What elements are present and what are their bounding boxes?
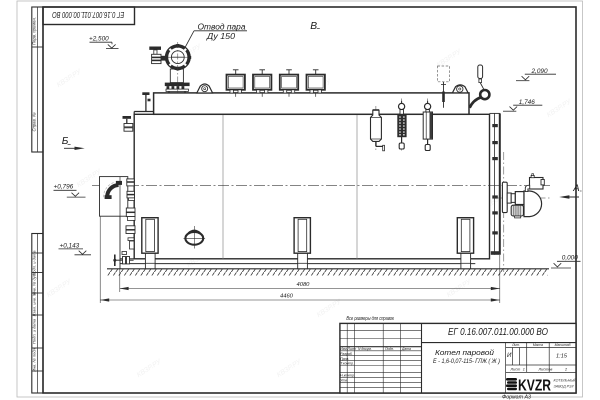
svg-text:Отвод пара: Отвод пара: [198, 22, 247, 31]
svg-text:КОТЕЛЬНЫЙ: КОТЕЛЬНЫЙ: [554, 379, 577, 383]
svg-text:2,090: 2,090: [531, 68, 548, 75]
svg-text:Все размеры для справок: Все размеры для справок: [346, 316, 394, 322]
svg-text:+2,500: +2,500: [89, 36, 109, 43]
svg-text:Взам. инв. №: Взам. инв. №: [32, 291, 37, 316]
svg-text:Т.контр.: Т.контр.: [340, 362, 354, 366]
svg-text:Инв. № подл.: Инв. № подл.: [32, 347, 37, 372]
svg-text:Масса: Масса: [533, 343, 543, 347]
svg-text:4080: 4080: [297, 282, 311, 288]
svg-text:Перв. примен.: Перв. примен.: [32, 17, 37, 45]
svg-text:Разраб.: Разраб.: [340, 352, 352, 356]
svg-text:Утв.: Утв.: [340, 379, 348, 383]
svg-text:1:15: 1:15: [556, 354, 568, 360]
svg-text:Ду 150: Ду 150: [206, 32, 236, 41]
svg-text:ЕГ 0.16.007.011.00.000 ВО: ЕГ 0.16.007.011.00.000 ВО: [52, 10, 124, 19]
svg-text:Е - 1,6-0,07-115- ГЛЖ ( Ж ): Е - 1,6-0,07-115- ГЛЖ ( Ж ): [433, 358, 500, 365]
svg-text:ЗАВОД РЭУ: ЗАВОД РЭУ: [554, 385, 575, 389]
svg-text:В: В: [310, 21, 317, 32]
svg-text:Подп. и дата: Подп. и дата: [32, 318, 37, 344]
svg-text:4460: 4460: [280, 294, 294, 300]
svg-text:Масштаб: Масштаб: [555, 343, 571, 347]
svg-text:Листов: Листов: [538, 368, 553, 372]
svg-text:Лист: Лист: [510, 368, 521, 372]
svg-text:Справ. №: Справ. №: [32, 112, 37, 131]
svg-text:Пров.: Пров.: [340, 357, 349, 361]
svg-text:1,746: 1,746: [519, 99, 535, 106]
svg-text:1: 1: [523, 368, 525, 372]
svg-text:Б: Б: [62, 136, 69, 147]
svg-text:KVZR: KVZR: [518, 378, 551, 395]
svg-text:Н.контр.: Н.контр.: [340, 373, 354, 377]
svg-text:И: И: [507, 352, 512, 359]
svg-text:Инв. № дубл.: Инв. № дубл.: [32, 271, 37, 296]
svg-text:А: А: [572, 183, 579, 194]
svg-text:N докум.: N докум.: [358, 347, 372, 351]
svg-text:Лит.: Лит.: [511, 343, 520, 347]
svg-text:Подп.: Подп.: [385, 347, 394, 351]
svg-text:+0,143: +0,143: [60, 243, 80, 250]
svg-text:Дата: Дата: [401, 347, 411, 351]
svg-text:0,000: 0,000: [562, 254, 578, 261]
svg-text:Формат А3: Формат А3: [502, 394, 531, 400]
svg-text:+0,796: +0,796: [54, 184, 74, 191]
svg-text:ЕГ 0.16.007.011.00.000 ВО: ЕГ 0.16.007.011.00.000 ВО: [448, 327, 548, 338]
svg-text:Котел паровой: Котел паровой: [435, 349, 494, 357]
svg-text:Изм Лист: Изм Лист: [340, 347, 356, 351]
